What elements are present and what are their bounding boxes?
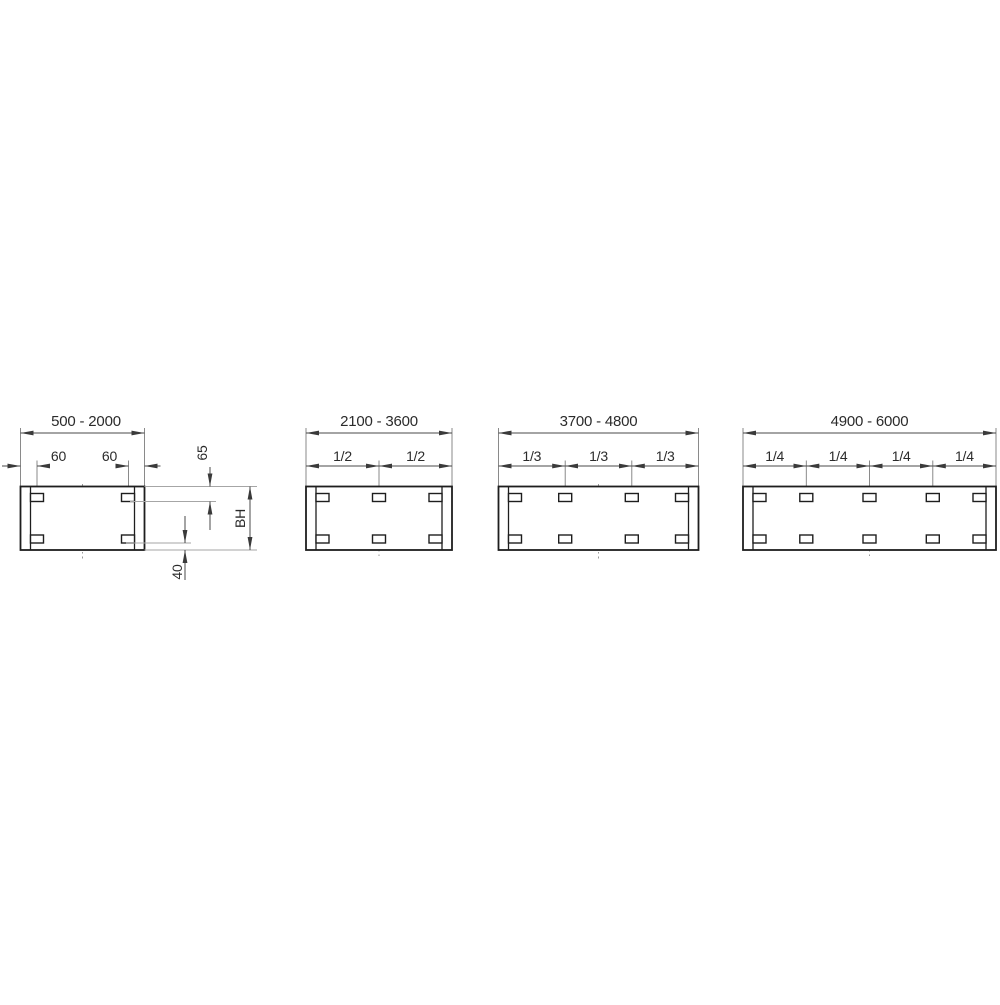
slot xyxy=(625,494,638,502)
slot xyxy=(926,494,939,502)
slot xyxy=(559,494,572,502)
dim-label-fraction: 1/4 xyxy=(829,448,848,464)
dim-label-bottom-slot-offset: 40 xyxy=(169,564,185,580)
slot xyxy=(316,535,329,543)
slot xyxy=(800,494,813,502)
dim-label-fraction: 1/4 xyxy=(892,448,911,464)
slot xyxy=(509,494,522,502)
panel-1-vertical-dims: 65 40 BH xyxy=(126,445,257,580)
slot xyxy=(676,535,689,543)
slot xyxy=(429,535,442,543)
slot xyxy=(863,494,876,502)
slot xyxy=(31,494,44,502)
slot xyxy=(373,494,386,502)
dim-label-fraction: 1/3 xyxy=(656,448,675,464)
slot xyxy=(559,535,572,543)
slot xyxy=(676,494,689,502)
dim-label-top-slot-offset: 65 xyxy=(194,445,210,461)
slot xyxy=(31,535,44,543)
drawing-canvas: 500 - 2000 60 60 65 xyxy=(0,0,1000,1000)
panel-2-group: 2100 - 3600 1/2 1/2 xyxy=(306,413,452,559)
dim-label-fraction: 1/2 xyxy=(333,448,352,464)
slot xyxy=(122,535,135,543)
slot xyxy=(509,535,522,543)
slot xyxy=(973,494,986,502)
dim-label-fraction: 1/2 xyxy=(406,448,425,464)
slot xyxy=(753,535,766,543)
slot xyxy=(122,494,135,502)
slot xyxy=(316,494,329,502)
dim-label-range-3: 3700 - 4800 xyxy=(560,413,638,430)
dim-label-range-4: 4900 - 6000 xyxy=(831,413,909,430)
dim-label-fraction: 1/3 xyxy=(522,448,541,464)
slot xyxy=(926,535,939,543)
dim-label-fraction: 1/4 xyxy=(955,448,974,464)
panel-4-group: 4900 - 6000 1/4 1/4 1/4 1/4 xyxy=(743,413,996,559)
slot xyxy=(863,535,876,543)
slot xyxy=(373,535,386,543)
slot xyxy=(973,535,986,543)
dim-label-fraction: 1/3 xyxy=(589,448,608,464)
technical-drawing: 500 - 2000 60 60 65 xyxy=(0,0,1000,1000)
panel-1-group: 500 - 2000 60 60 65 xyxy=(2,413,257,580)
slot xyxy=(429,494,442,502)
dim-label-range-1: 500 - 2000 xyxy=(51,413,121,430)
slot xyxy=(753,494,766,502)
dim-label-offset-right: 60 xyxy=(102,448,118,464)
slot xyxy=(800,535,813,543)
slot xyxy=(625,535,638,543)
dim-label-body-height: BH xyxy=(232,509,248,528)
dim-label-offset-left: 60 xyxy=(51,448,67,464)
panel-body-3 xyxy=(499,487,699,551)
panel-3-group: 3700 - 4800 1/3 1/3 1/3 xyxy=(499,413,699,559)
dim-label-range-2: 2100 - 3600 xyxy=(340,413,418,430)
dim-label-fraction: 1/4 xyxy=(765,448,784,464)
